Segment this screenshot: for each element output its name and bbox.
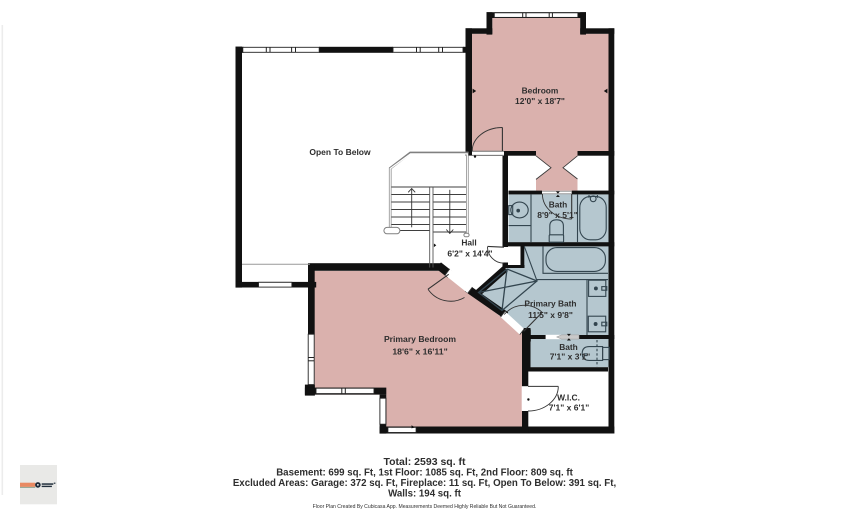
svg-text:8'9" x 5'1": 8'9" x 5'1" (537, 210, 577, 220)
svg-text:Bath: Bath (559, 342, 578, 352)
svg-text:Floor Plan Created By Cubicasa: Floor Plan Created By Cubicasa App. Meas… (313, 504, 537, 510)
svg-text:Excluded Areas: Garage: 372 sq: Excluded Areas: Garage: 372 sq. Ft, Fire… (233, 478, 617, 489)
svg-text:Walls: 194 sq. ft: Walls: 194 sq. ft (388, 488, 462, 499)
svg-text:7'1" x 3'1": 7'1" x 3'1" (550, 352, 590, 362)
svg-text:W.I.C.: W.I.C. (557, 392, 580, 402)
svg-text:11'5" x 9'8": 11'5" x 9'8" (528, 310, 573, 320)
svg-text:Total: 2593 sq. ft: Total: 2593 sq. ft (383, 456, 466, 468)
svg-text:7'1" x 6'1": 7'1" x 6'1" (549, 402, 589, 412)
svg-text:Primary Bath: Primary Bath (524, 298, 576, 308)
svg-text:6'2" x 14'4": 6'2" x 14'4" (447, 249, 492, 259)
svg-text:12'0" x 18'7": 12'0" x 18'7" (515, 96, 565, 106)
svg-text:Open To Below: Open To Below (309, 147, 371, 157)
svg-text:Bedroom: Bedroom (522, 86, 559, 96)
svg-text:Primary Bedroom: Primary Bedroom (384, 334, 456, 344)
svg-text:Bath: Bath (549, 200, 568, 210)
svg-text:18'6" x 16'11": 18'6" x 16'11" (392, 347, 447, 357)
svg-text:Basement: 699 sq. Ft, 1st Floo: Basement: 699 sq. Ft, 1st Floor: 1085 sq… (276, 467, 573, 478)
svg-text:Hall: Hall (461, 237, 476, 247)
